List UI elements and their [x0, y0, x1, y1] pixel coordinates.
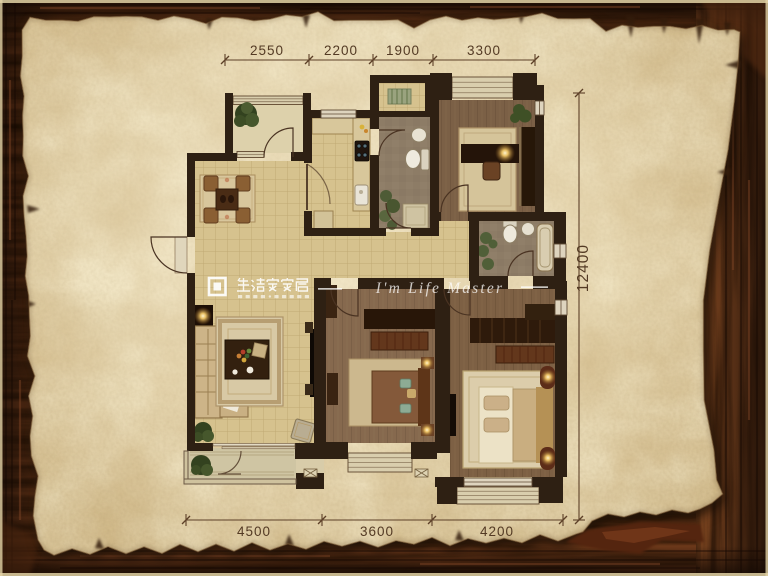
- svg-text:1900: 1900: [386, 43, 420, 58]
- svg-text:12400: 12400: [575, 244, 592, 292]
- svg-text:4200: 4200: [480, 524, 514, 539]
- svg-text:4500: 4500: [237, 524, 271, 539]
- svg-text:I'm Life Master: I'm Life Master: [375, 280, 504, 297]
- svg-text:3600: 3600: [360, 524, 394, 539]
- svg-text:2200: 2200: [324, 43, 358, 58]
- svg-text:3300: 3300: [467, 43, 501, 58]
- svg-text:2550: 2550: [250, 43, 284, 58]
